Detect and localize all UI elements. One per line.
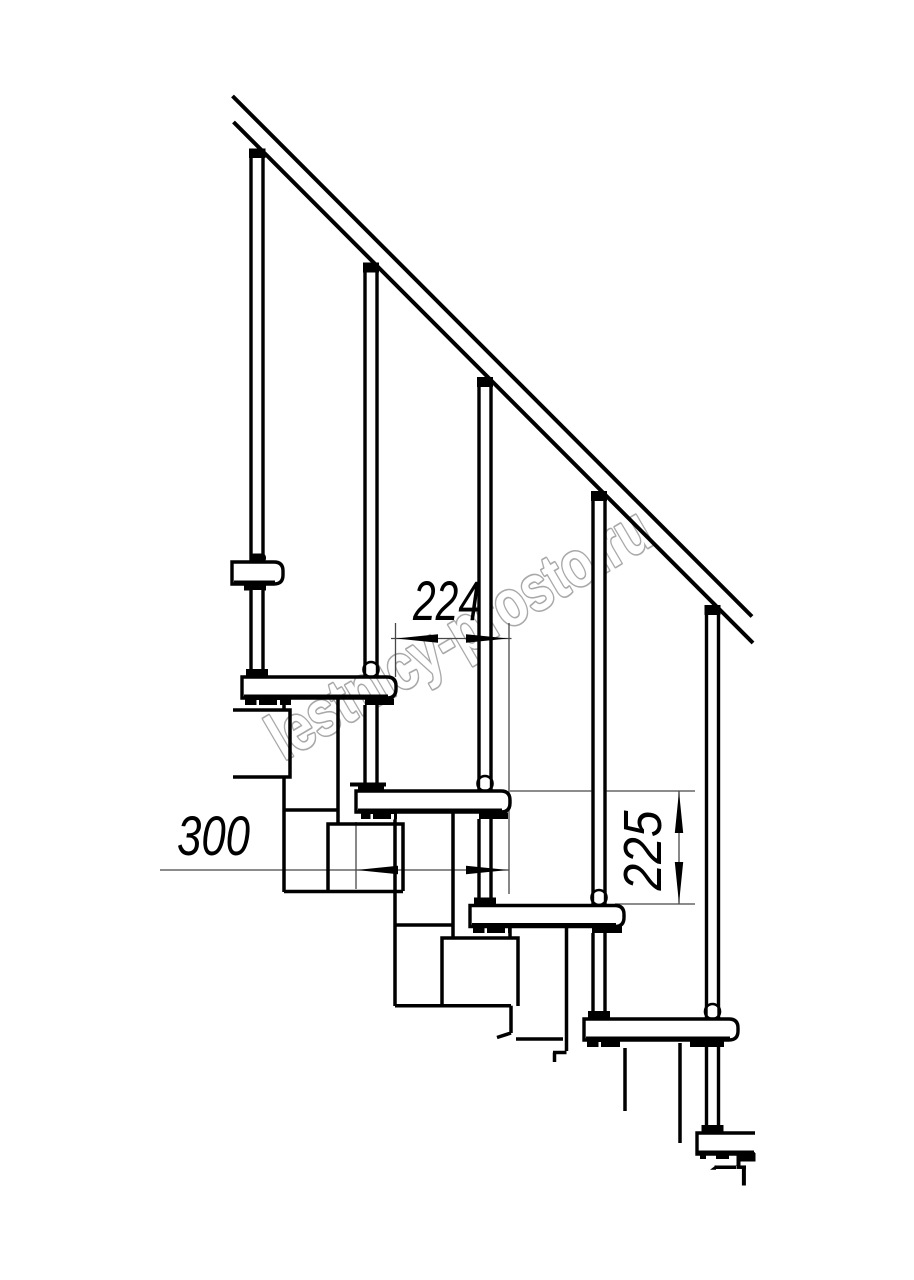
svg-text:300: 300 <box>177 804 250 867</box>
svg-text:224: 224 <box>412 569 481 632</box>
svg-text:225: 225 <box>613 810 673 892</box>
